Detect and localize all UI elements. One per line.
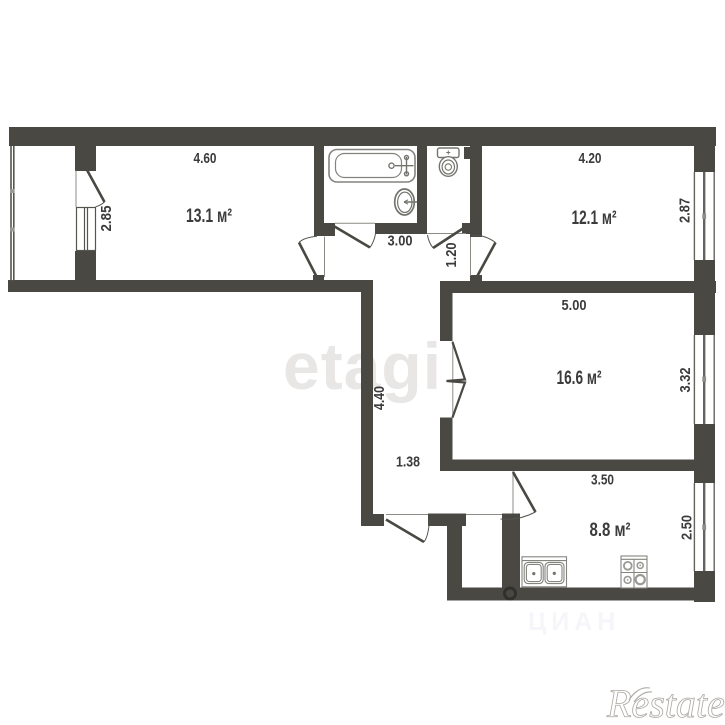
svg-text:3.50: 3.50 (591, 472, 614, 489)
svg-text:12.1 м²: 12.1 м² (572, 208, 617, 229)
svg-text:Restate: Restate (606, 681, 725, 725)
svg-text:8.8 м²: 8.8 м² (590, 520, 631, 541)
svg-text:16.6 м²: 16.6 м² (557, 368, 602, 389)
svg-text:2.85: 2.85 (98, 206, 115, 232)
svg-text:2.50: 2.50 (679, 515, 696, 540)
svg-text:2.87: 2.87 (677, 198, 694, 223)
svg-text:4.20: 4.20 (579, 150, 602, 167)
svg-text:3.00: 3.00 (388, 233, 413, 250)
svg-text:4.60: 4.60 (194, 150, 217, 167)
svg-text:ЦИАН: ЦИАН (528, 608, 620, 636)
svg-text:5.00: 5.00 (562, 297, 587, 314)
svg-text:13.1 м²: 13.1 м² (186, 206, 232, 227)
svg-text:4.40: 4.40 (371, 386, 388, 410)
svg-text:3.32: 3.32 (677, 368, 694, 393)
svg-text:1.20: 1.20 (443, 243, 460, 268)
svg-text:1.38: 1.38 (396, 454, 420, 471)
